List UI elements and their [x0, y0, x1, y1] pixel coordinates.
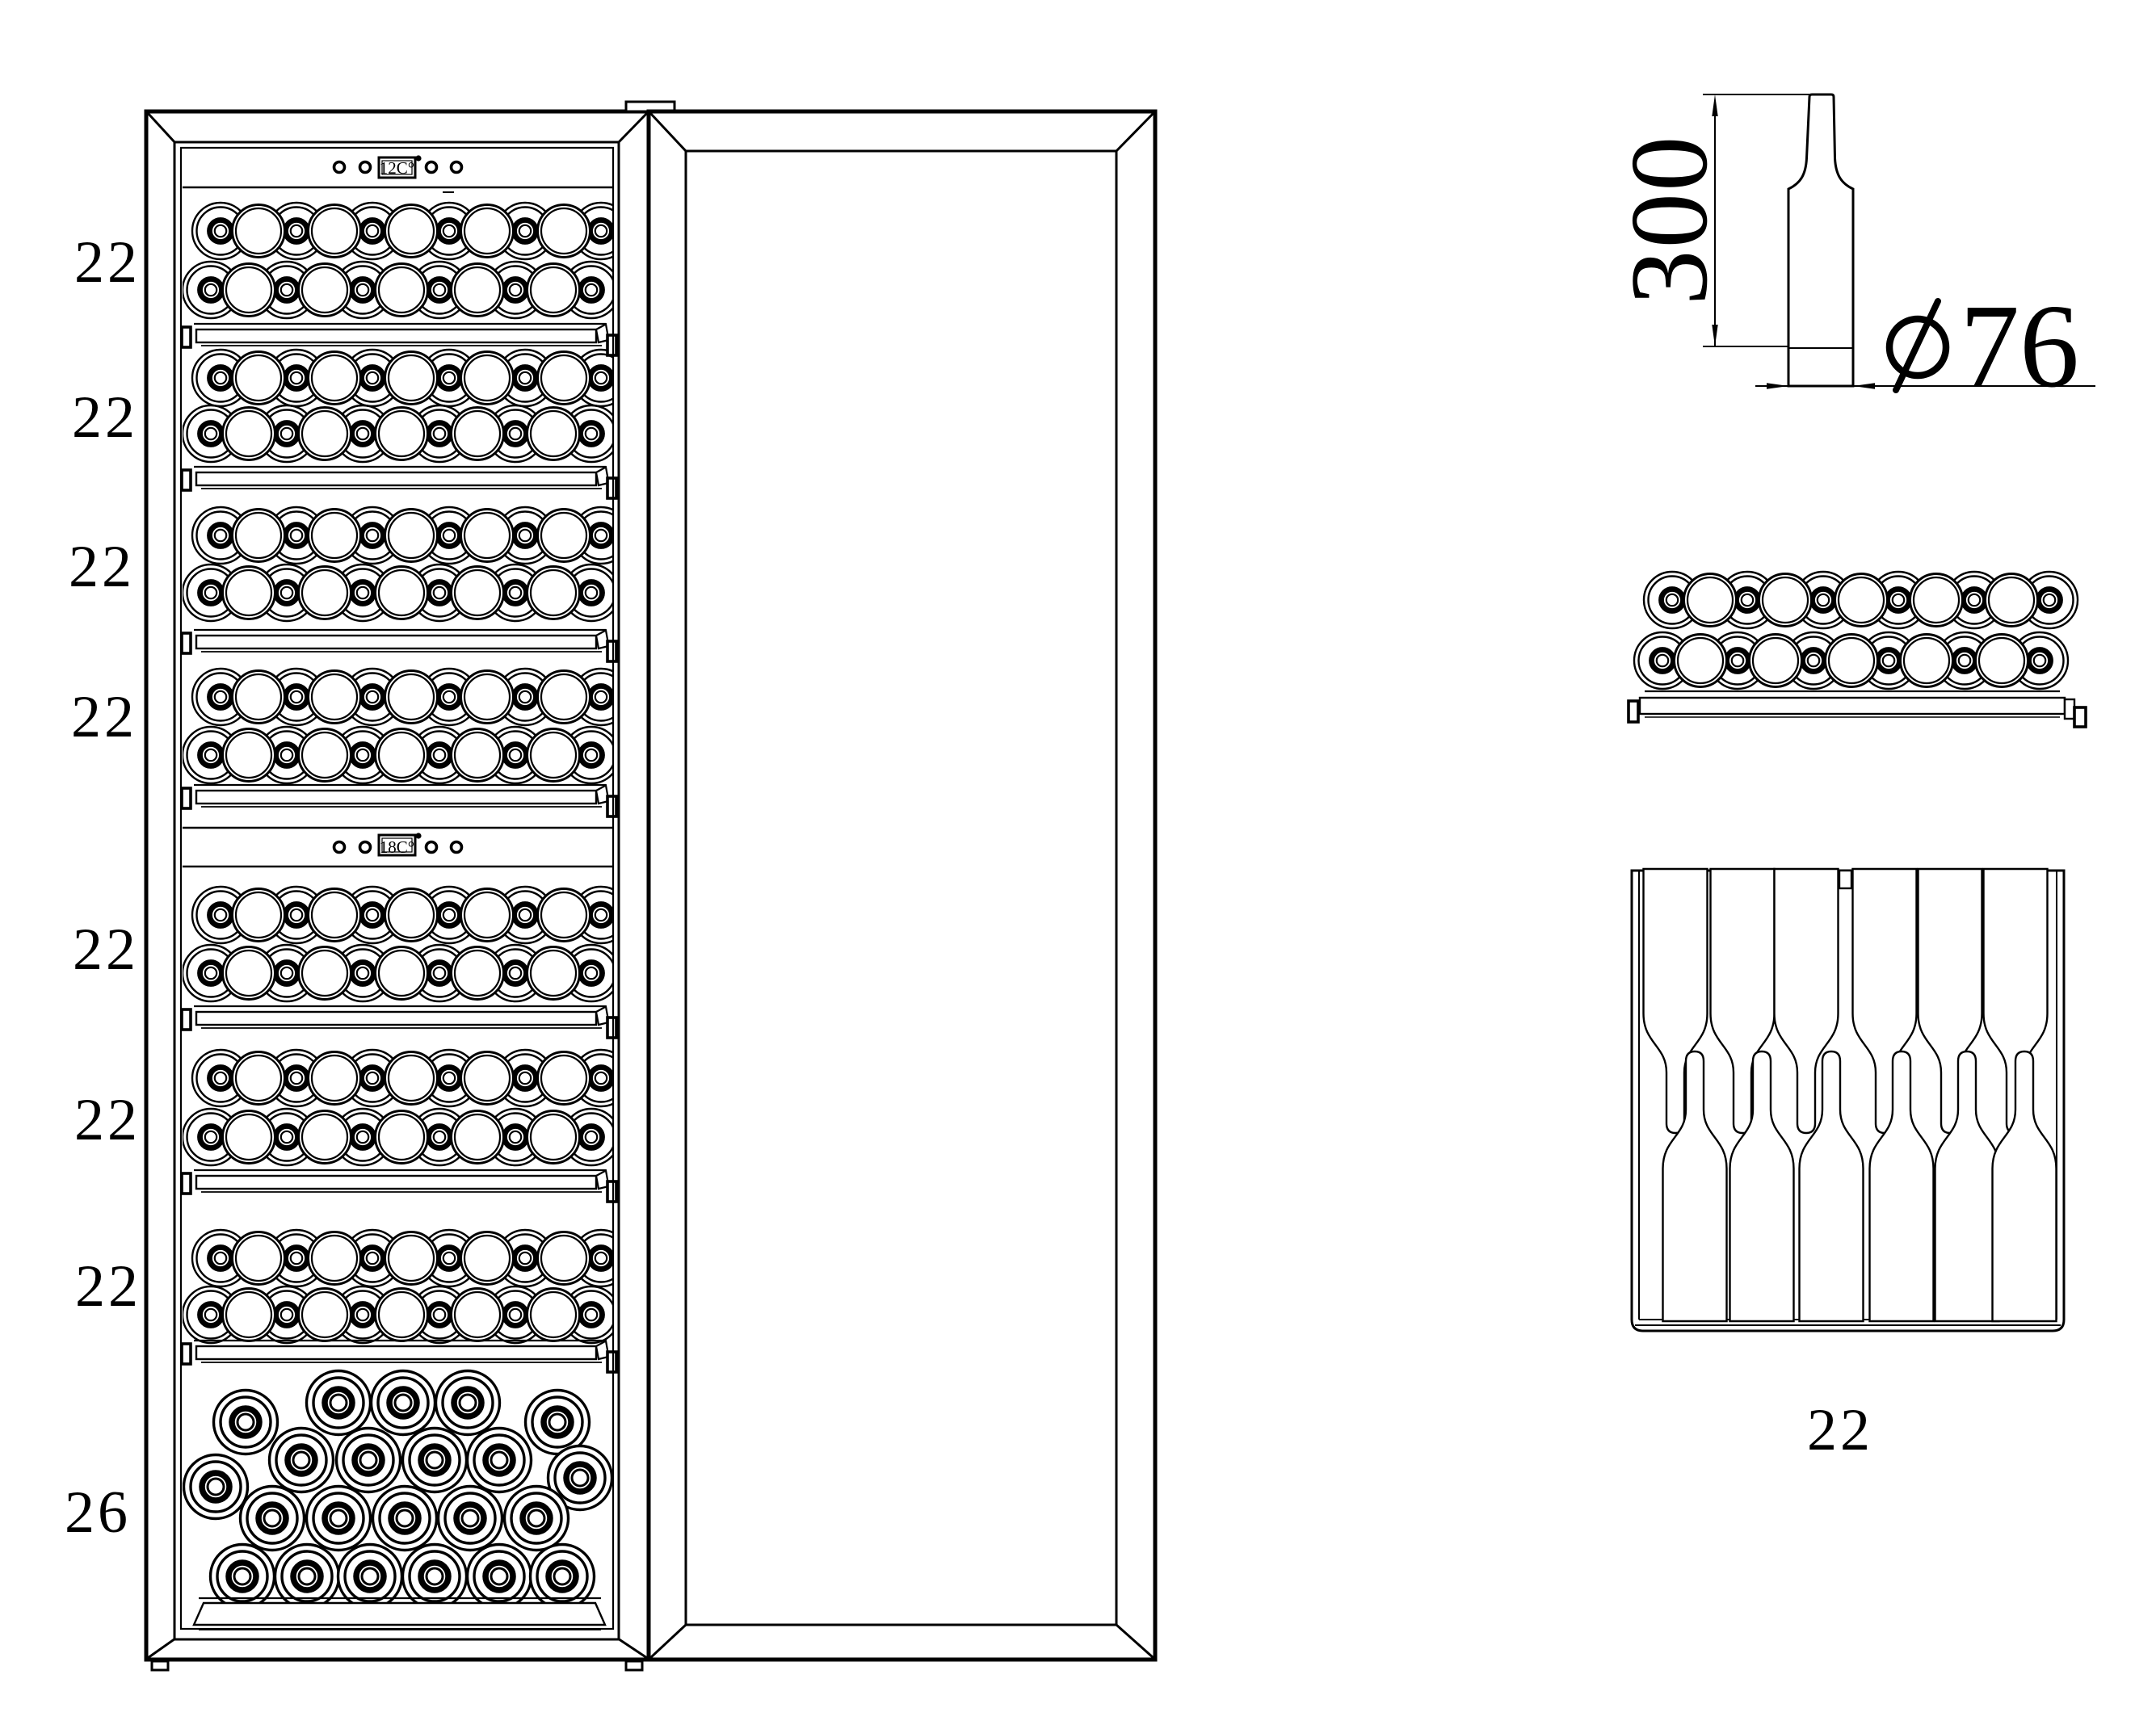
svg-text:22: 22 [74, 229, 141, 296]
svg-text:22: 22 [1807, 1397, 1873, 1463]
svg-text:22: 22 [69, 534, 135, 600]
svg-text:26: 26 [65, 1479, 131, 1546]
svg-text:22: 22 [72, 384, 138, 451]
svg-text:22: 22 [75, 1253, 141, 1320]
svg-text:18C°: 18C° [380, 837, 414, 857]
svg-text:76: 76 [1960, 280, 2079, 413]
svg-text:300: 300 [1608, 135, 1730, 306]
svg-text:22: 22 [73, 917, 139, 983]
svg-text:22: 22 [74, 1087, 141, 1153]
svg-text:22: 22 [71, 684, 137, 750]
svg-text:12C°: 12C° [380, 158, 414, 178]
